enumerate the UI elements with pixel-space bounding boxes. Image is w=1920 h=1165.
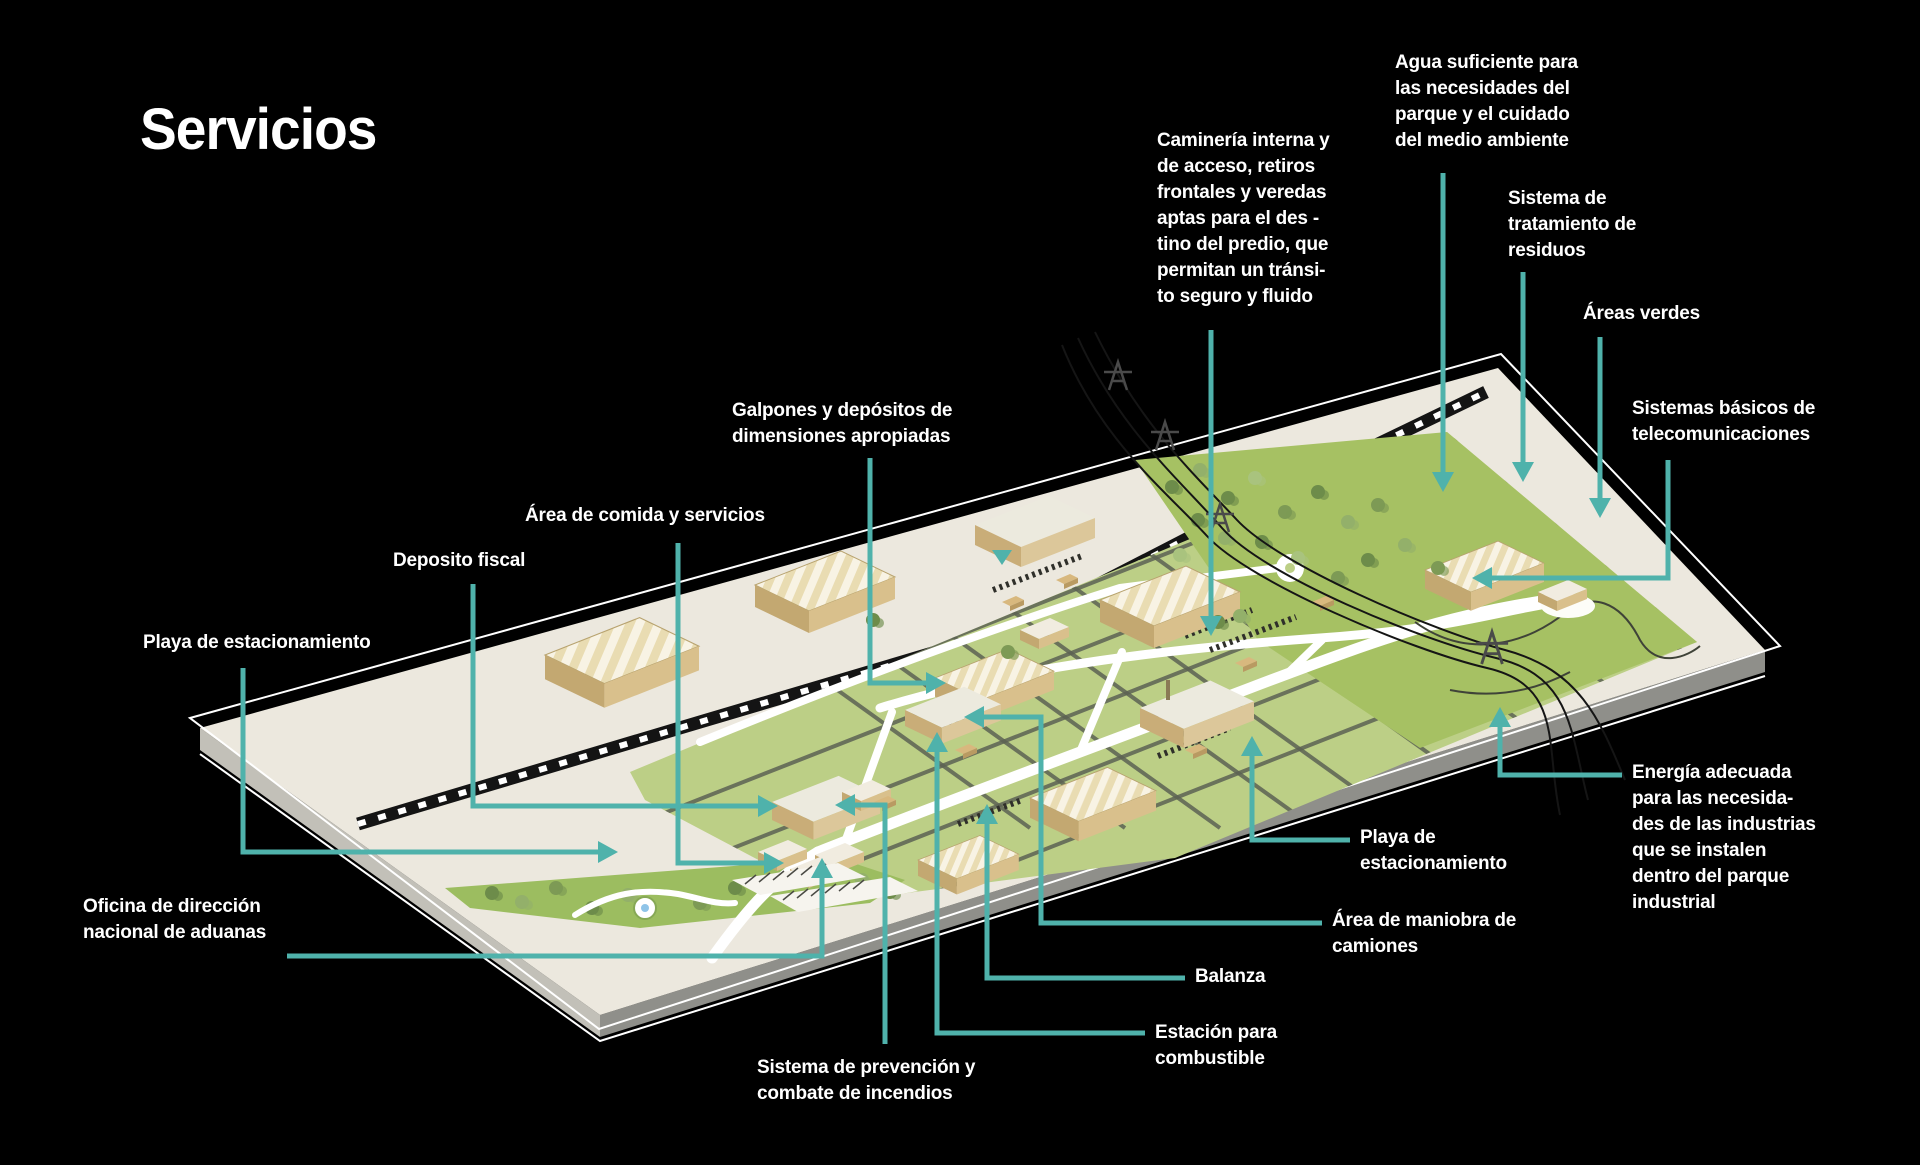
arrowhead-icon-galpones xyxy=(926,672,946,694)
leader-line-playa-izq xyxy=(243,668,598,852)
leader-line-deposito xyxy=(473,584,758,806)
arrowhead-icon-balanza xyxy=(976,804,998,824)
arrowhead-icon-areas-verdes xyxy=(1589,498,1611,518)
leader-line-prevencion xyxy=(855,805,885,1044)
arrowhead-icon-playa-der xyxy=(1241,736,1263,756)
arrowhead-icon-deposito xyxy=(758,795,778,817)
arrowhead-icon-estacion xyxy=(926,732,948,752)
down-triangle-icon xyxy=(992,550,1012,565)
leader-line-playa-der xyxy=(1252,756,1350,840)
arrowhead-icon-telecom xyxy=(1472,567,1492,589)
arrowhead-icon-energia xyxy=(1489,707,1511,727)
leader-line-comida xyxy=(678,543,764,863)
arrowhead-icon-maniobra xyxy=(964,706,984,728)
arrowhead-icon-oficina xyxy=(811,858,833,878)
arrowhead-icon-camineria xyxy=(1200,616,1222,636)
leader-layer xyxy=(0,0,1920,1165)
leader-line-maniobra xyxy=(984,717,1322,923)
leader-line-energia xyxy=(1500,727,1622,775)
leader-line-galpones xyxy=(870,458,926,683)
arrowhead-icon-agua xyxy=(1432,472,1454,492)
arrowhead-icon-comida xyxy=(764,852,784,874)
arrowhead-icon-playa-izq xyxy=(598,841,618,863)
arrowhead-icon-tratamiento xyxy=(1512,462,1534,482)
leader-line-balanza xyxy=(987,824,1185,978)
leader-line-telecom xyxy=(1492,460,1668,578)
leader-line-oficina xyxy=(287,878,822,956)
arrowhead-icon-prevencion xyxy=(835,794,855,816)
infographic-page: Servicios xyxy=(0,0,1920,1165)
